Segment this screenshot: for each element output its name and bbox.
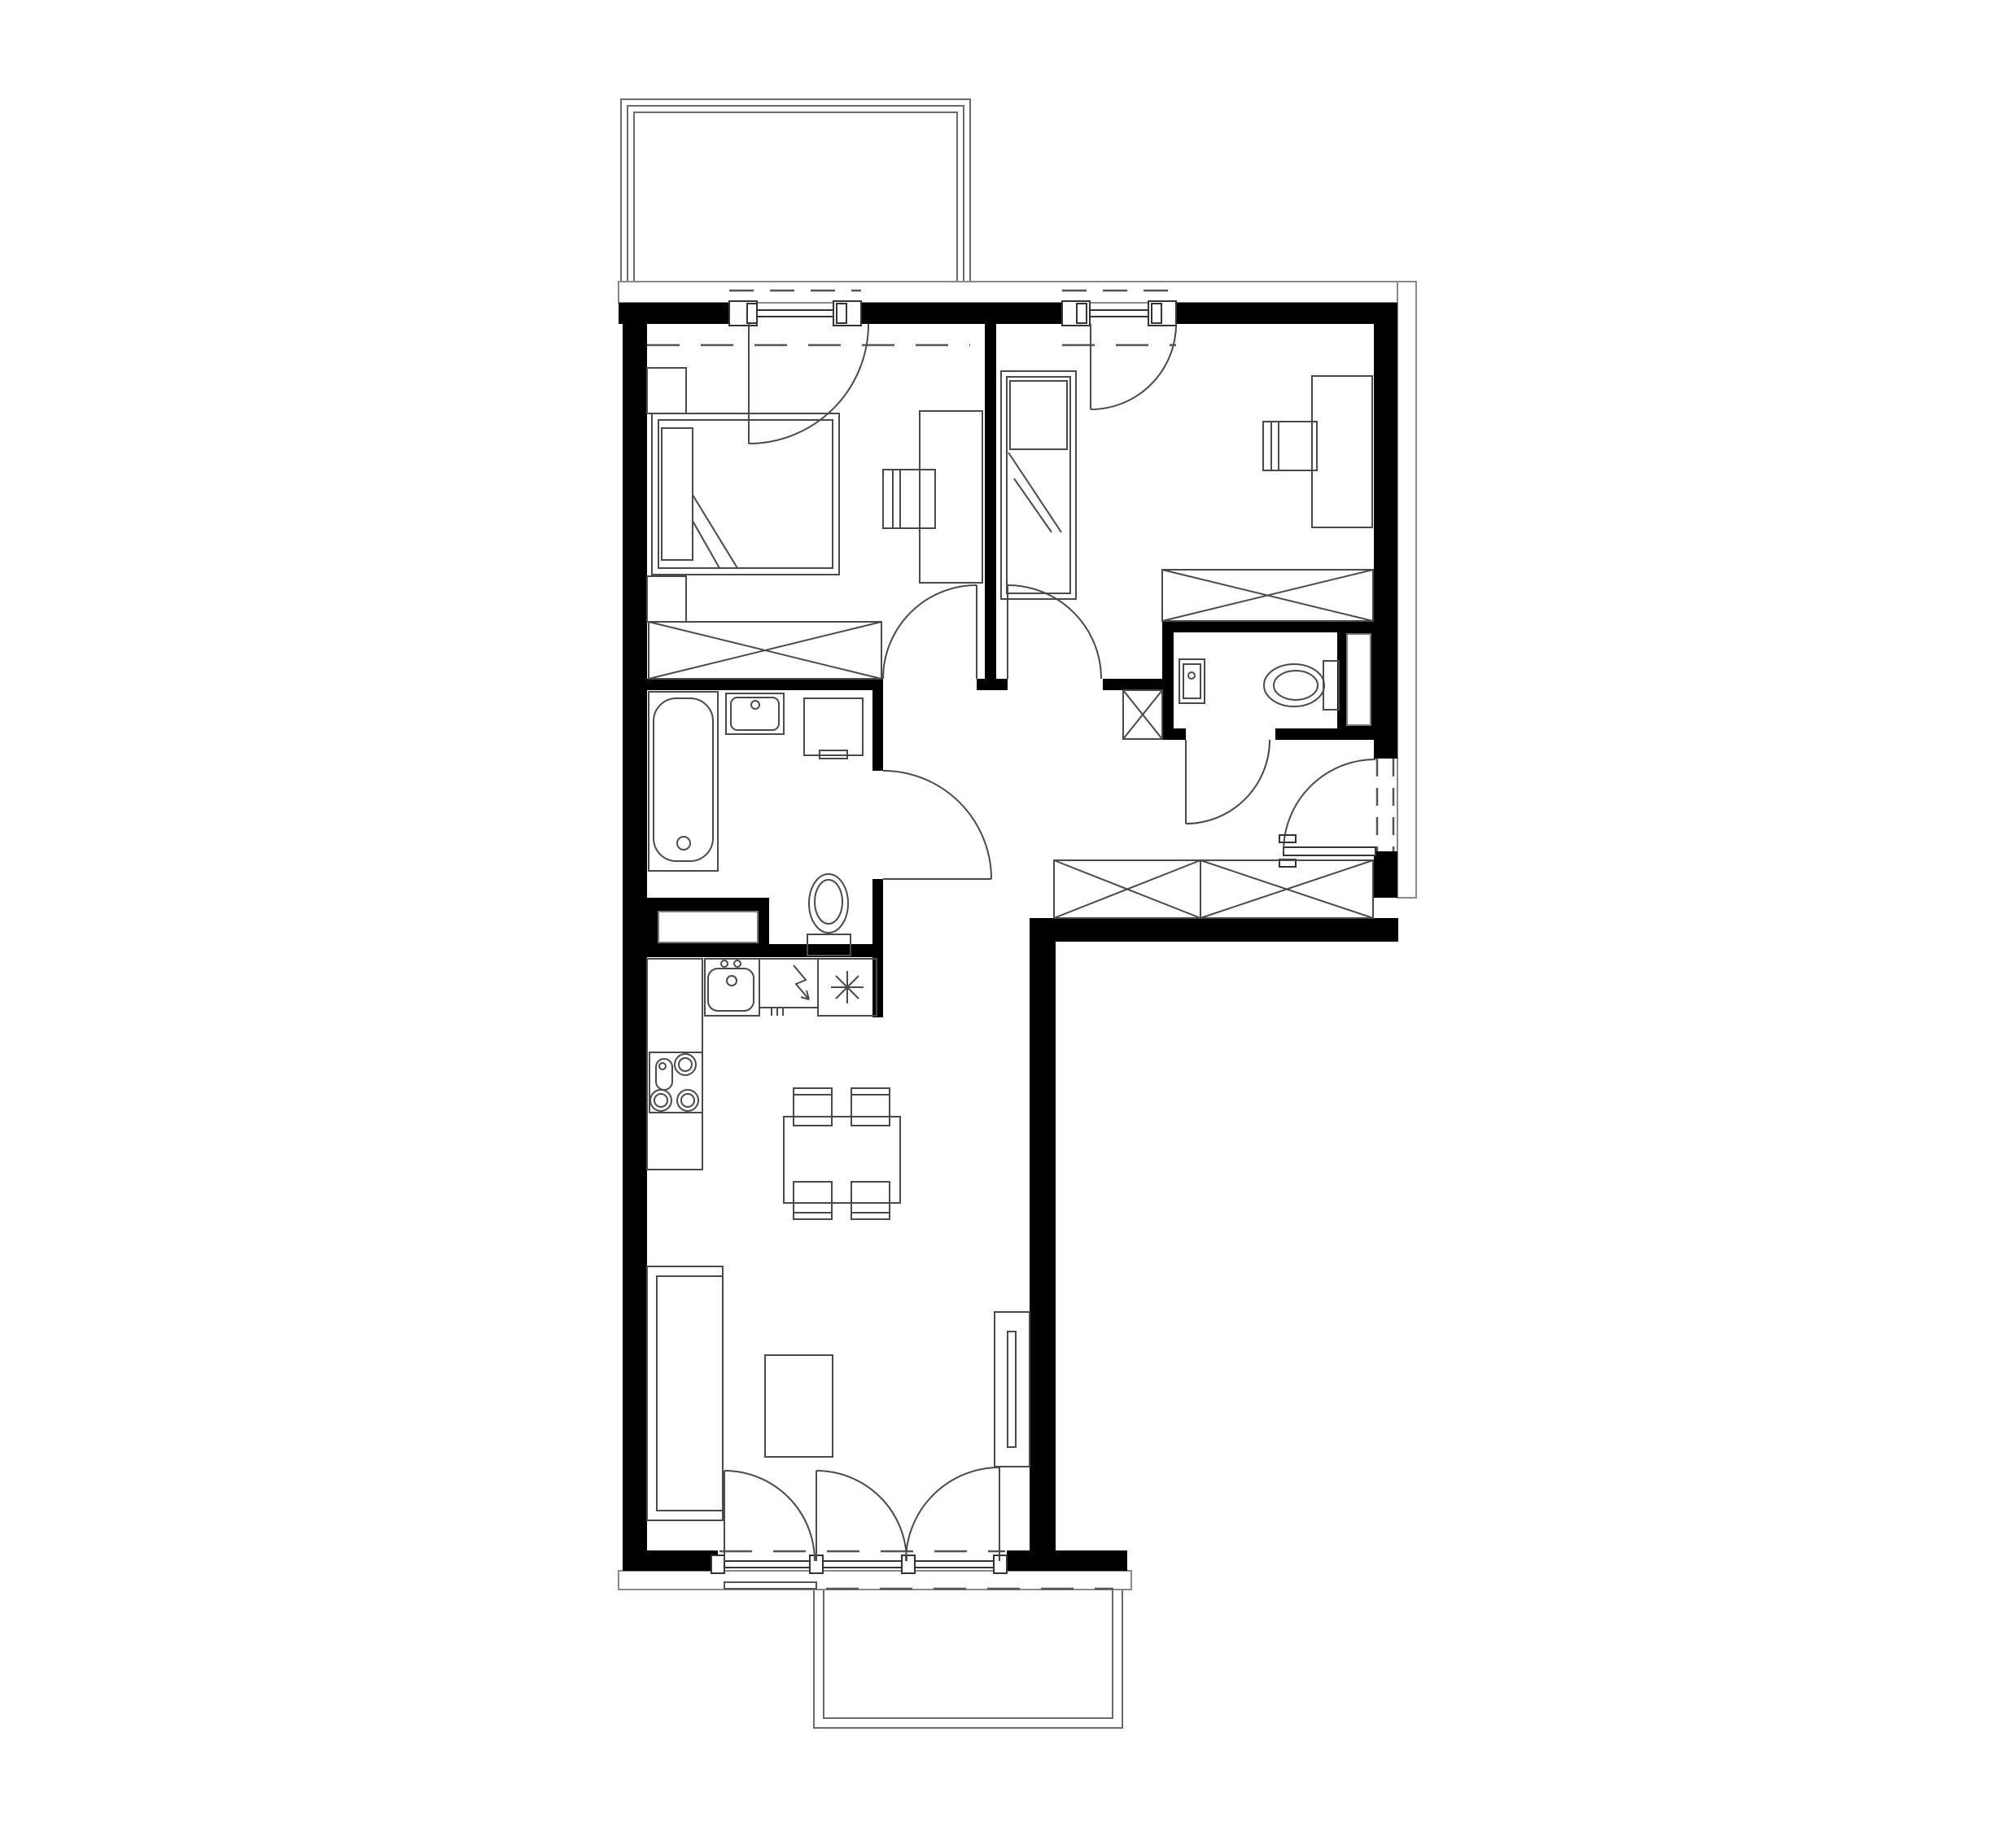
door-wc [1186, 740, 1270, 824]
bedroom2-wardrobe [1162, 570, 1373, 621]
kitchen-fridge [818, 959, 877, 1016]
dining-table [784, 1117, 900, 1203]
exterior-band-right [1397, 282, 1416, 898]
bathroom-toilet [807, 874, 851, 956]
window-bedroom1 [729, 301, 861, 326]
dining-chair-top-right [851, 1088, 890, 1126]
exterior-band-bottom [619, 1571, 1131, 1590]
entry-door [1279, 759, 1375, 867]
duct-shaft-inset [658, 912, 758, 942]
bedroom1-nightstand-top [647, 368, 686, 413]
bedroom1-desk [920, 411, 982, 583]
door-swing-bedroom1-window [749, 324, 868, 444]
bedroom1-chair [883, 470, 935, 528]
bedroom1-nightstand-bottom [647, 576, 686, 622]
hall-wardrobe [1054, 860, 1373, 918]
kitchen-stove [649, 1052, 702, 1113]
wc-basin [1179, 659, 1205, 703]
dining-chair-bottom-left [794, 1182, 832, 1219]
bathroom-washing-machine [804, 698, 863, 759]
sofa [647, 1266, 723, 1520]
bathroom-basin [726, 693, 784, 734]
hall-shaft [1123, 690, 1162, 739]
door-swing-living-right [906, 1467, 999, 1561]
tv-unit [995, 1312, 1030, 1467]
bedroom2-chair [1263, 422, 1317, 470]
door-bedroom1 [883, 585, 977, 679]
door-swing-bedroom2-window [1091, 324, 1176, 409]
wc-toilet [1264, 661, 1339, 710]
bathroom-bathtub [649, 692, 718, 871]
door-bathroom [883, 771, 991, 879]
bedroom2-bed [1001, 371, 1076, 599]
kitchen-sink [705, 959, 759, 1016]
kitchen-dishwasher [759, 959, 818, 1016]
balcony-top [621, 99, 970, 282]
window-bedroom2 [1062, 301, 1176, 326]
door-swing-living-middle [816, 1471, 907, 1561]
bedroom1-wardrobe [649, 622, 881, 679]
coffee-table [765, 1355, 833, 1457]
apartment-floor-plan [0, 0, 2016, 1828]
floor-plan-page [0, 0, 2016, 1828]
bedroom2-desk [1312, 376, 1372, 527]
dining-chair-bottom-right [851, 1182, 890, 1219]
bedroom1-bed [652, 413, 839, 575]
wc-shaft-inset [1347, 634, 1371, 725]
exterior-band-top [619, 282, 1416, 303]
door-swing-living-left [724, 1471, 815, 1561]
dining-chair-top-left [794, 1088, 832, 1126]
terrace-bottom [814, 1590, 1122, 1728]
